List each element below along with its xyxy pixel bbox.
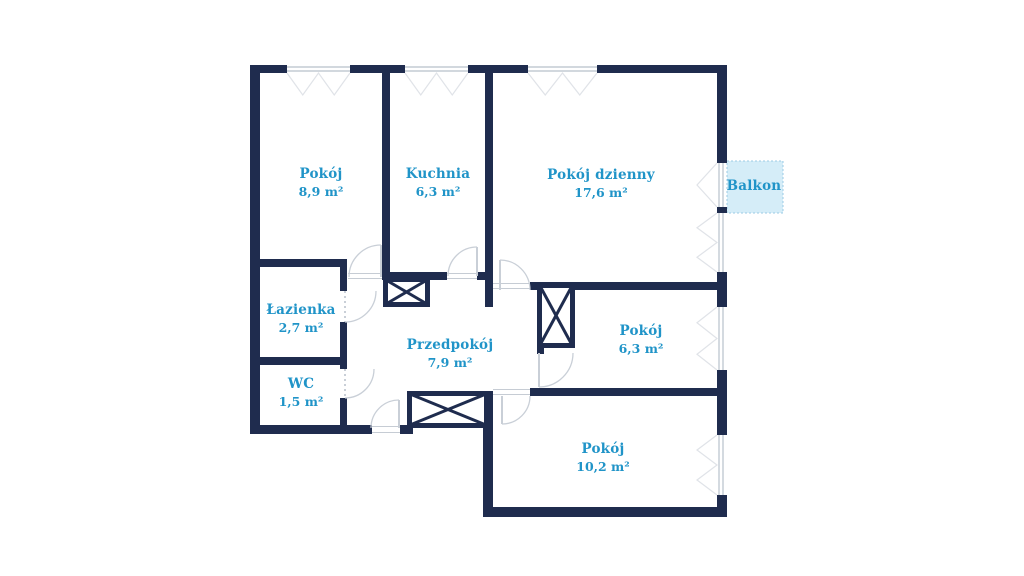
wall-segment bbox=[340, 322, 347, 369]
room-name: WC bbox=[279, 376, 324, 394]
wall-segment bbox=[485, 65, 493, 307]
room-area: 6,3 m² bbox=[406, 184, 470, 200]
floor-plan-drawing bbox=[0, 0, 1024, 576]
room-name: Pokój bbox=[619, 323, 664, 341]
wall-segment bbox=[250, 357, 347, 365]
door-swing-arc-icon bbox=[448, 247, 477, 276]
window-opening-mark-icon bbox=[405, 73, 468, 95]
room-name: Kuchnia bbox=[406, 166, 470, 184]
wall-segment bbox=[340, 398, 347, 434]
room-label-wc: WC 1,5 m² bbox=[279, 376, 324, 410]
door-swing-arc-icon bbox=[539, 353, 573, 387]
door-swing-arc-icon bbox=[371, 400, 399, 428]
door-swing-arc-icon bbox=[345, 369, 374, 398]
wall-segment bbox=[717, 370, 727, 435]
window-opening-mark-icon bbox=[697, 435, 717, 495]
room-name: Pokój bbox=[299, 166, 344, 184]
window-opening-mark-icon bbox=[697, 213, 717, 272]
room-area: 8,9 m² bbox=[299, 184, 344, 200]
room-label-pokoj-1: Pokój 8,9 m² bbox=[299, 166, 344, 200]
wall-segment bbox=[250, 65, 260, 434]
door-swing-arc-icon bbox=[502, 396, 530, 424]
wall-segment bbox=[717, 207, 727, 213]
wall-segment bbox=[597, 65, 727, 73]
room-area: 7,9 m² bbox=[407, 355, 494, 371]
door-swing-arc-icon bbox=[500, 260, 530, 290]
room-area: 6,3 m² bbox=[619, 341, 664, 357]
room-name: Pokój bbox=[576, 441, 630, 459]
door-swing-arc-icon bbox=[345, 291, 376, 322]
room-area: 10,2 m² bbox=[576, 459, 630, 475]
wall-segment bbox=[483, 507, 727, 517]
room-name: Pokój dzienny bbox=[547, 167, 655, 185]
room-label-kuchnia: Kuchnia 6,3 m² bbox=[406, 166, 470, 200]
room-label-balkon: Balkon bbox=[727, 178, 782, 196]
wall-segment bbox=[340, 259, 347, 291]
wall-segment bbox=[350, 65, 405, 73]
wall-segment bbox=[382, 65, 390, 277]
room-label-przedpokoj: Przedpokój 7,9 m² bbox=[407, 337, 494, 371]
window-opening-mark-icon bbox=[287, 73, 350, 95]
window-opening-mark-icon bbox=[697, 307, 717, 370]
room-label-pokoj-2: Pokój 6,3 m² bbox=[619, 323, 664, 357]
room-name: Przedpokój bbox=[407, 337, 494, 355]
room-label-pokoj-dzienny: Pokój dzienny 17,6 m² bbox=[547, 167, 655, 201]
room-area: 2,7 m² bbox=[266, 320, 335, 336]
room-name: Balkon bbox=[727, 178, 782, 196]
room-label-pokoj-3: Pokój 10,2 m² bbox=[576, 441, 630, 475]
window-opening-mark-icon bbox=[697, 163, 717, 207]
wall-segment bbox=[250, 425, 372, 434]
wall-segment bbox=[250, 259, 347, 267]
floor-plan: Pokój 8,9 m² Kuchnia 6,3 m² Pokój dzienn… bbox=[0, 0, 1024, 576]
door-swing-arc-icon bbox=[349, 245, 381, 277]
wall-segment bbox=[468, 65, 528, 73]
room-label-lazienka: Łazienka 2,7 m² bbox=[266, 302, 335, 336]
window-opening-mark-icon bbox=[528, 73, 597, 95]
wall-segment bbox=[717, 65, 727, 163]
room-area: 1,5 m² bbox=[279, 394, 324, 410]
room-name: Łazienka bbox=[266, 302, 335, 320]
room-area: 17,6 m² bbox=[547, 185, 655, 201]
wall-segment bbox=[530, 388, 727, 396]
